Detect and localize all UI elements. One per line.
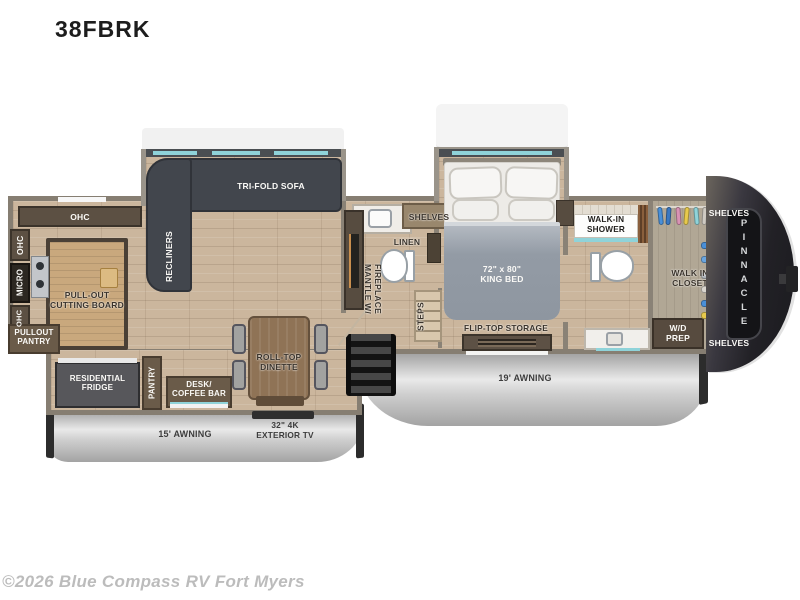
king-bed-label: 72" x 80" KING BED bbox=[452, 264, 552, 284]
awning-15ft-label: 15' AWNING bbox=[120, 429, 250, 440]
walk-in-shower-label: WALK-IN SHOWER bbox=[572, 215, 640, 234]
exterior-tv-bar bbox=[252, 411, 314, 419]
midbath-sink bbox=[368, 209, 392, 228]
copyright-text: ©2026 Blue Compass RV Fort Myers bbox=[2, 572, 305, 592]
closet-shelves-top-label: SHELVES bbox=[700, 208, 758, 218]
exterior-tv-label: 32" 4K EXTERIOR TV bbox=[245, 421, 325, 441]
shower-tile bbox=[574, 205, 638, 214]
fridge-label: RESIDENTIAL FRIDGE bbox=[55, 374, 140, 393]
dinette-chair-1 bbox=[232, 324, 246, 354]
desk-label: DESK/ COFFEE BAR bbox=[160, 380, 238, 399]
dinette-chair-4 bbox=[314, 360, 328, 390]
pullout-pantry-label: PULLOUT PANTRY bbox=[8, 328, 60, 347]
sofa-window-3 bbox=[274, 151, 328, 155]
fridge-counter-strip bbox=[58, 358, 137, 363]
hitch-pin bbox=[786, 266, 798, 292]
cooktop-burner-2 bbox=[36, 280, 44, 288]
sofa-window-2 bbox=[212, 151, 260, 155]
ohc-top-label: OHC bbox=[18, 212, 142, 222]
pantry-label: PANTRY bbox=[145, 358, 159, 408]
dinette-base bbox=[256, 396, 304, 406]
steps-label: STEPS bbox=[414, 294, 427, 340]
tri-fold-sofa-label: TRI-FOLD SOFA bbox=[206, 181, 336, 191]
ohc-upper-label: OHC bbox=[13, 231, 27, 259]
bed-pillow-4 bbox=[508, 199, 555, 221]
cooktop-burner-1 bbox=[36, 262, 44, 270]
page-title: 38FBRK bbox=[55, 16, 150, 43]
bed-pillow-2 bbox=[504, 166, 558, 200]
shower-glass-accent bbox=[574, 238, 638, 242]
bed-pillow-3 bbox=[452, 199, 499, 221]
bed-window bbox=[452, 151, 552, 155]
closet-shelves-bottom-label: SHELVES bbox=[700, 338, 758, 348]
midbath-toilet-bowl bbox=[380, 249, 408, 283]
frontbath-vanity-accent bbox=[596, 348, 640, 351]
wd-prep-label: W/D PREP bbox=[652, 323, 704, 343]
flip-top-storage-label: FLIP-TOP STORAGE bbox=[448, 324, 564, 334]
kitchen-window-strip bbox=[58, 197, 106, 202]
slide-topper-bed bbox=[436, 104, 568, 150]
dinette-chair-3 bbox=[314, 324, 328, 354]
midbath-shelves-label: SHELVES bbox=[400, 212, 458, 222]
linen-label: LINEN bbox=[388, 237, 426, 247]
ohc-lower-label: OHC bbox=[13, 306, 27, 330]
microwave-label: MICRO bbox=[13, 264, 27, 302]
fireplace-label: MANTLE W/ FIREPLACE bbox=[362, 230, 384, 348]
recliners-label: RECLINERS bbox=[162, 222, 176, 292]
desk-counter-strip bbox=[170, 402, 228, 408]
frontbath-sink bbox=[606, 332, 623, 346]
flip-top-storage-vents bbox=[478, 339, 536, 347]
brand-name: PINNACLE bbox=[734, 216, 754, 332]
awning-19ft bbox=[358, 346, 706, 426]
dinette-label: ROLL-TOP DINETTE bbox=[246, 352, 312, 372]
cutting-board-icon bbox=[100, 268, 118, 288]
awning-19ft-label: 19' AWNING bbox=[455, 373, 595, 384]
floorplan-page: 38FBRK 15' AWNING 19' AWNING OHC OHC MIC… bbox=[0, 0, 800, 600]
bed-pillow-1 bbox=[448, 166, 502, 200]
linen-cabinet bbox=[427, 233, 441, 263]
awning-15ft-endcap-left bbox=[46, 407, 54, 458]
flip-top-storage-step bbox=[466, 351, 548, 355]
sofa-window-1 bbox=[153, 151, 197, 155]
cutting-board-label: PULL-OUT CUTTING BOARD bbox=[36, 290, 138, 310]
frontbath-toilet-bowl bbox=[600, 250, 634, 282]
fireplace-insert bbox=[349, 234, 359, 288]
